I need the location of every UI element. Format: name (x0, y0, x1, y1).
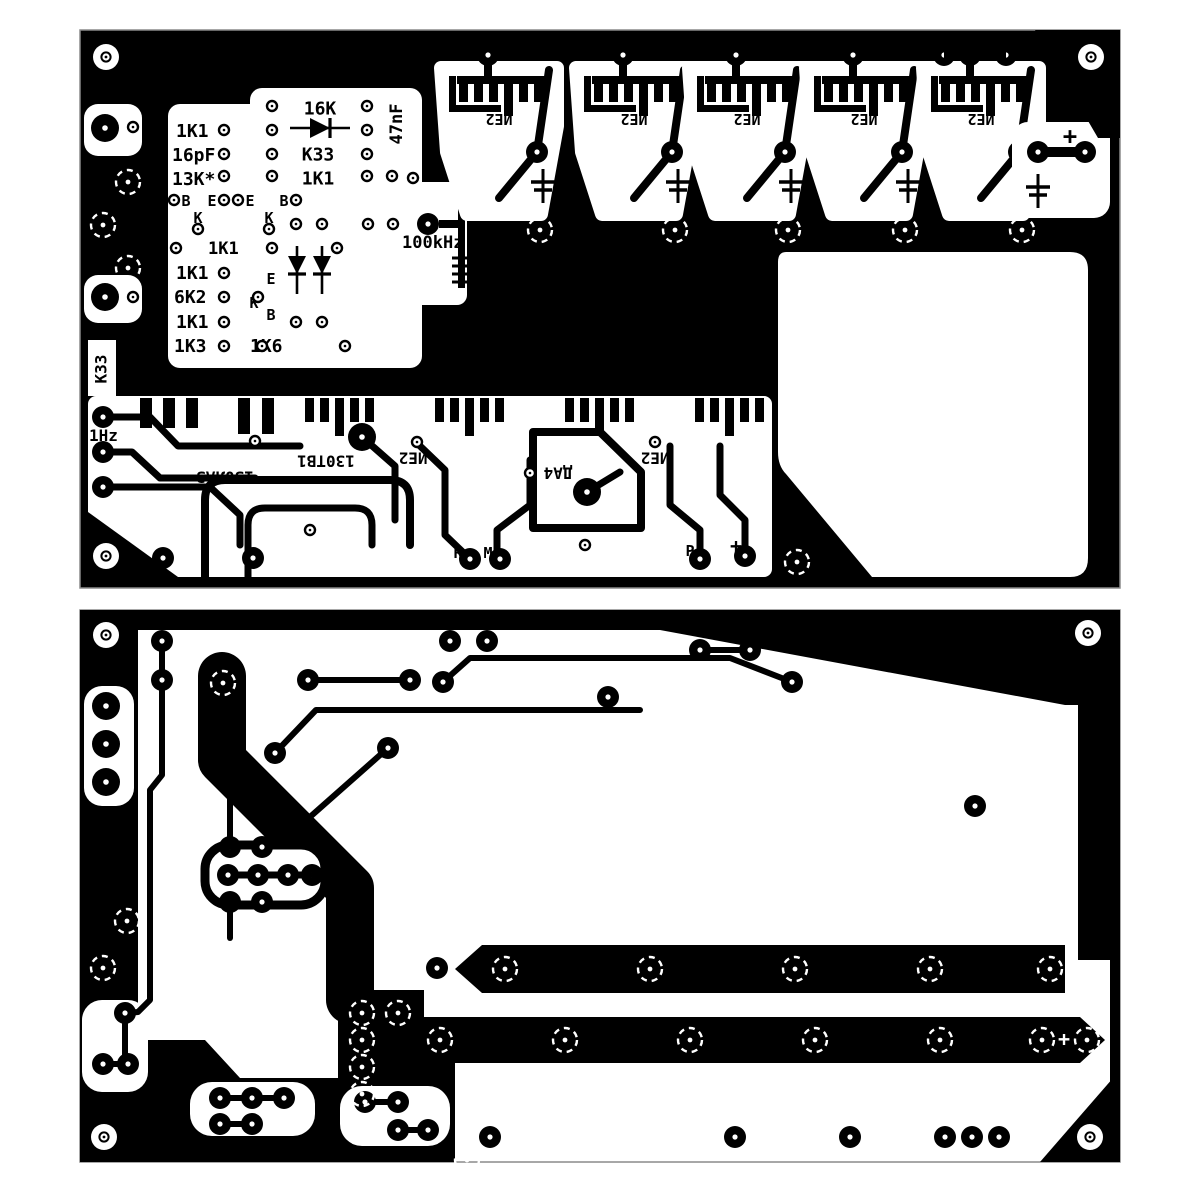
clock-frequency-label: 100kHz (402, 233, 463, 253)
bus-bar (368, 1017, 1105, 1063)
ic-outline-cluster (205, 836, 325, 913)
transistor-pin-label: E (266, 270, 275, 288)
plus-supply-label: + (1063, 122, 1077, 150)
resistor-label: 1K1 (176, 263, 209, 284)
pcb-layout-canvas: 1K1 16pF 13K* 16K K33 1K1 47nF B E E B K… (0, 0, 1200, 1200)
transistor-pin-label: B (279, 192, 288, 210)
resistor-label: 13K* (172, 169, 215, 190)
resistor-label: 16K (304, 99, 337, 120)
ic-designator-mirrored: 130ЛА3 (196, 468, 254, 487)
pcb-artwork-page: 1K1 16pF 13K* 16K K33 1K1 47nF B E E B K… (0, 0, 1200, 1200)
transistor-pin-label: B (266, 306, 275, 324)
frequency-label-mirrored: 10KHz (497, 36, 542, 54)
frequency-label-mirrored: 100Hz (747, 36, 792, 54)
mounting-hole (93, 44, 119, 70)
ic-designator-mirrored: ИЕ2 (399, 449, 428, 468)
resistor-label: 1K1 (176, 312, 209, 333)
resistor-label: 1K1 (302, 169, 335, 190)
plus-supply-label: + (730, 534, 742, 558)
edge-capacitor-label: K33 (92, 355, 111, 384)
ic-designator-mirrored: ИЕ2 (485, 110, 512, 128)
transistor-pin-label: E (245, 192, 254, 210)
bus-bar (455, 945, 1065, 993)
ic-designator-mirrored: ДА4 (544, 464, 573, 483)
frequency-label: 1Hz (89, 426, 118, 445)
mounting-hole (1078, 44, 1104, 70)
capacitor-label-vertical: 47nF (387, 104, 407, 145)
capacitor-label: 16pF (172, 145, 215, 166)
pad-label-m: M (483, 544, 492, 562)
capacitor-label: K33 (302, 145, 335, 166)
frequency-label-mirrored: 10Hz (850, 36, 886, 54)
pad-label-r: R (453, 544, 463, 562)
plus-supply-label: + (1058, 1027, 1070, 1051)
resistor-label: 6K2 (174, 287, 207, 308)
ic-designator-mirrored: ИЕ2 (733, 110, 760, 128)
resistor-label: 1K3 (174, 336, 207, 357)
ic-designator-mirrored: 130ТВ1 (297, 452, 355, 471)
mounting-hole (1077, 1124, 1103, 1150)
mounting-hole (93, 543, 119, 569)
transistor-pin-label: E (207, 192, 216, 210)
pad-label-p: P (685, 542, 694, 560)
ic-designator-mirrored: ИЕ2 (641, 449, 670, 468)
mounting-hole (93, 622, 119, 648)
ic-designator-mirrored: ИЕ2 (850, 110, 877, 128)
mounting-hole (1075, 620, 1101, 646)
bottom-board-panel: + (80, 610, 1120, 1172)
mounting-hole (91, 1124, 117, 1150)
top-board-panel: 1K1 16pF 13K* 16K K33 1K1 47nF B E E B K… (80, 30, 1120, 588)
middle-trace-band: 1Hz 130ЛА3 130ТВ1 ИЕ2 ДА4 ИЕ2 R M P + (88, 396, 772, 577)
resistor-label: 1K1 (176, 121, 209, 142)
frequency-label-mirrored: 1Hz (998, 33, 1025, 51)
ic-designator-mirrored: ИЕ2 (967, 110, 994, 128)
resistor-label: 1K1 (208, 239, 239, 259)
ic-designator-mirrored: ИЕ2 (620, 110, 647, 128)
transistor-pin-label: B (181, 192, 190, 210)
